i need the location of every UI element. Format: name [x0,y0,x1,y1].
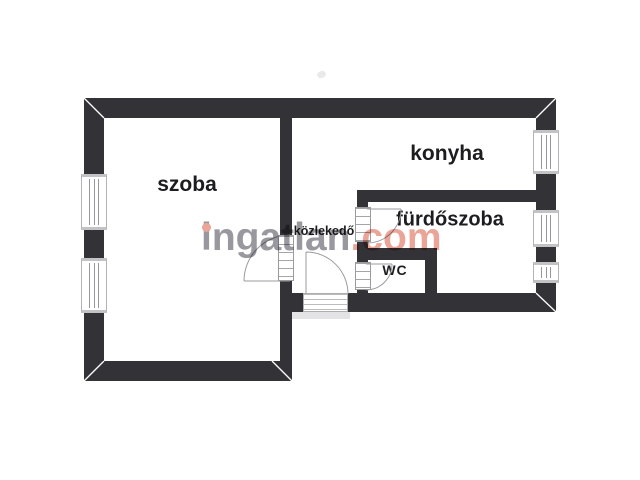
window-panes [541,267,551,278]
door-swing-entry [306,252,348,294]
window-symbol-right-kitchen [533,130,559,174]
wall-kitchen-bath [357,190,536,202]
window-symbol-left-lower [81,258,107,313]
room-label-kozlekedo: közlekedő [294,224,354,238]
wall-wc-east [425,248,437,312]
floorplan-canvas: szoba konyha fürdőszoba WC közlekedő ing… [0,0,640,480]
window-panes [89,179,99,225]
window-symbol-right-bath-upper [533,210,559,247]
door-opening-bath [355,207,371,242]
room-label-wc: WC [382,262,407,278]
watermark-i-dot-icon [202,223,211,232]
window-panes [541,215,551,242]
entry-door-threshold [303,293,348,312]
window-panes [541,135,551,169]
scan-smudge [316,70,327,80]
entry-step [288,312,350,319]
wall-left [84,98,104,381]
window-panes [89,263,99,308]
door-opening-wc [355,262,371,290]
room-label-konyha: konyha [410,142,484,166]
window-symbol-left-upper [81,174,107,230]
room-label-szoba: szoba [157,173,217,197]
room-label-furdoszoba: fürdőszoba [396,209,504,232]
door-opening-szoba [278,235,294,281]
wall-top [84,98,556,118]
wall-szoba-bottom [84,361,292,381]
window-symbol-right-bath-lower [533,262,559,283]
